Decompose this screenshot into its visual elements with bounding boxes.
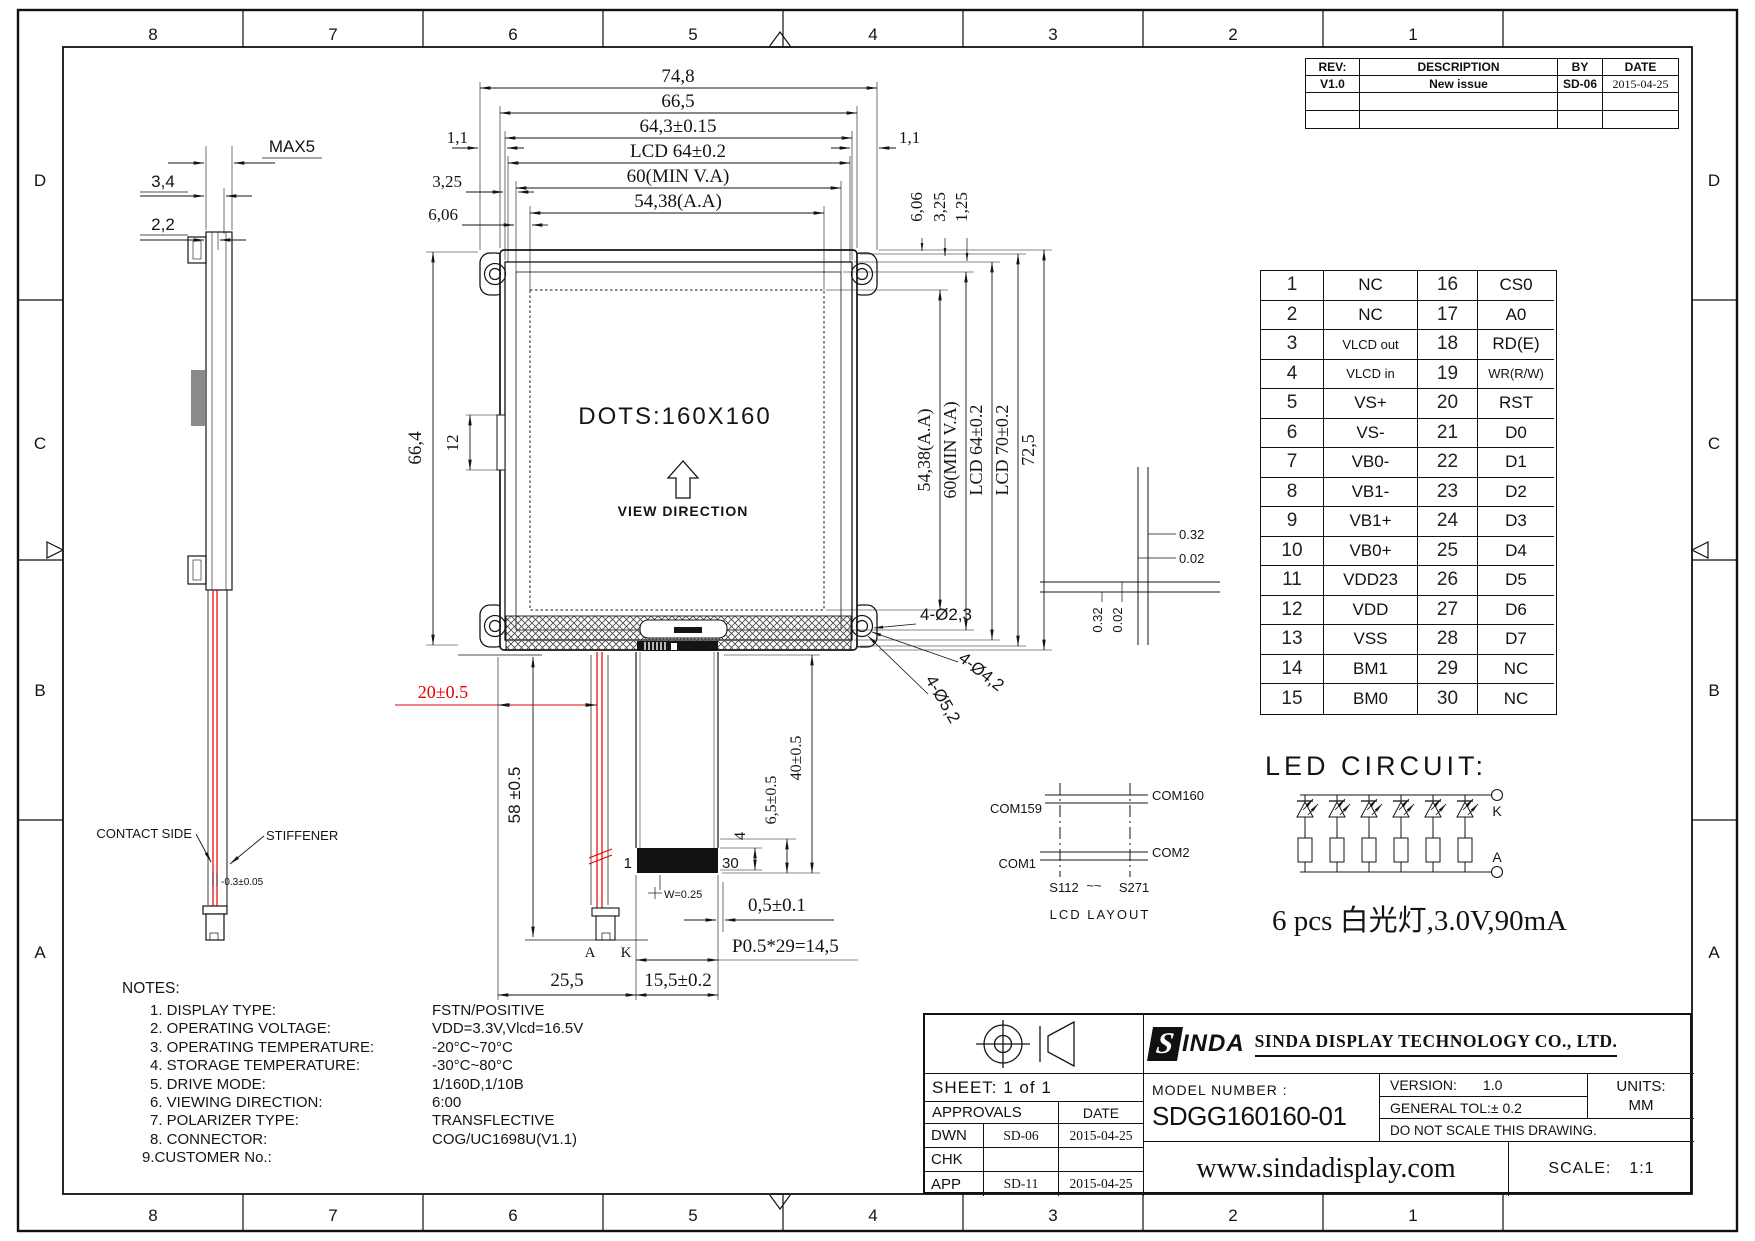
version-label: VERSION: [1390,1077,1457,1093]
note-label: 1. DISPLAY TYPE: [122,1002,432,1020]
zone-bot-4: 4 [868,1206,877,1225]
pin-name: VSS [1324,625,1418,655]
dim-60-va-h: 60(MIN V.A) [940,401,961,498]
pin-no: 20 [1418,389,1478,419]
note-item: 4. STORAGE TEMPERATURE:-30°C~80°C [122,1057,642,1075]
pin-no: 29 [1418,655,1478,685]
pin-no: 12 [1261,596,1324,626]
dim-20-red: 20±0.5 [418,682,468,702]
pin-name: NC [1324,271,1418,301]
pin-name: VB1+ [1324,507,1418,537]
detail-0-02-top: 0.02 [1179,551,1204,566]
pin-no: 13 [1261,625,1324,655]
projection-symbol-cell [925,1015,1144,1074]
dwn-by: SD-06 [984,1124,1059,1148]
pin-no: 1 [1261,271,1324,301]
pin-name: WR(R/W) [1478,360,1554,390]
pin-no: 24 [1418,507,1478,537]
app-by: SD-11 [984,1172,1059,1196]
dim-12: 12 [443,435,462,452]
pin-no: 16 [1418,271,1478,301]
scale-value: 1:1 [1629,1160,1654,1178]
view-direction-label: VIEW DIRECTION [618,503,749,519]
led-circuit [1297,790,1503,878]
dim-max5: MAX5 [269,137,315,156]
pin-assignment-table: 1NC16CS0 2NC17A0 3VLCD out18RD(E) 4VLCD … [1260,270,1557,715]
pin-name: RST [1478,389,1554,419]
dim-40: 40±0.5 [788,736,805,781]
pin-name: D3 [1478,507,1554,537]
note-item: 8. CONNECTOR:COG/UC1698U(V1.1) [122,1131,642,1149]
pin-no: 22 [1418,448,1478,478]
dim-15-5: 15,5±0.2 [644,970,711,991]
rev-cell: New issue [1360,76,1558,93]
pin-no: 15 [1261,684,1324,714]
model-number-value: SDGG160160-01 [1152,1101,1379,1132]
dim-72-5: 72,5 [1018,434,1038,466]
zone-top-5: 5 [688,25,697,44]
zone-top-1: 1 [1408,25,1417,44]
version-cell: VERSION: 1.0 [1380,1074,1587,1097]
pin-name: D7 [1478,625,1554,655]
center-mark-bottom [769,1194,791,1209]
chk-by [984,1148,1059,1172]
note-label: 5. DRIVE MODE: [122,1076,432,1094]
dim-pitch: P0.5*29=14,5 [732,936,839,957]
pin-no: 4 [1261,360,1324,390]
pin-name: VB1- [1324,478,1418,508]
company-header: S INDA SINDA DISPLAY TECHNOLOGY CO., LTD… [1144,1015,1694,1074]
dim-4-d4-2: 4-Ø4,2 [955,648,1008,695]
dim-4: 4 [732,832,749,840]
k-terminal [1492,790,1503,801]
fpc-pin30-label: 30 [722,855,739,872]
pin-no: 7 [1261,448,1324,478]
units-cell: UNITS: MM [1587,1074,1694,1119]
sinda-logo-text: INDA [1182,1030,1245,1058]
dim-58: 58 ±0.5 [505,767,524,824]
rev-cell-empty [1558,93,1603,110]
plug-k-label: K [621,945,632,961]
led-circuit-title: LED CIRCUIT: [1265,751,1487,781]
note-label: 9.CUSTOMER No.: [122,1149,424,1167]
scale-cell: SCALE: 1:1 [1509,1142,1694,1196]
zone-right-B: B [1708,681,1719,700]
note-item: 6. VIEWING DIRECTION:6:00 [122,1094,642,1112]
sinda-logo-icon: S [1147,1027,1183,1061]
pin-name: RD(E) [1478,330,1554,360]
pin-name: D6 [1478,596,1554,626]
zone-right-C: C [1708,434,1720,453]
zone-left-C: C [34,434,46,453]
pin-no: 18 [1418,330,1478,360]
note-value: COG/UC1698U(V1.1) [432,1131,577,1149]
pin-no: 19 [1418,360,1478,390]
note-item: 3. OPERATING TEMPERATURE:-20°C~70°C [122,1039,642,1057]
stiffener-label: STIFFENER [266,828,338,843]
pin-name: A0 [1478,301,1554,331]
pin-name: D5 [1478,566,1554,596]
rev-cell-empty [1603,93,1678,110]
dim-66-4: 66,4 [405,431,426,465]
dim-4-d2-3: 4-Ø2,3 [920,605,972,624]
top-dimension-labels: 74,8 66,5 64,3±0.15 LCD 64±0.2 60(MIN V.… [428,66,971,224]
pin-no: 3 [1261,330,1324,360]
model-number-label: MODEL NUMBER : [1152,1082,1379,1098]
pin-name: VDD [1324,596,1418,626]
module-bezel [500,250,857,650]
dim-3-25-right: 3,25 [930,192,949,222]
dwn-label: DWN [925,1124,984,1148]
date-header: DATE [1059,1102,1144,1124]
led-caption: 6 pcs 白光灯,3.0V,90mA [1272,904,1567,937]
lcd-layout-diagram [1040,783,1148,877]
dim-3-4: 3,4 [151,172,175,191]
zone-left-A: A [34,943,46,962]
bottom-dimension-labels: 1 30 W=0.25 20±0.5 58 ±0.5 25,5 15,5±0.2… [418,682,839,991]
note-item: 1. DISPLAY TYPE:FSTN/POSITIVE [122,1002,642,1020]
zone-left-D: D [34,171,46,190]
led-a-label: A [1492,849,1502,865]
dim-4-d5-2: 4-Ø5,2 [922,672,964,727]
rev-cell-empty [1360,111,1558,128]
pin-no: 9 [1261,507,1324,537]
pin-no: 11 [1261,566,1324,596]
tolerance-cell: GENERAL TOL:± 0.2 [1380,1097,1587,1119]
pin-name: BM1 [1324,655,1418,685]
note-label: 3. OPERATING TEMPERATURE: [122,1039,432,1057]
dim-74-8: 74,8 [661,66,694,87]
rev-cell-empty [1306,93,1360,110]
zone-left-B: B [34,681,45,700]
notes-heading: NOTES: [122,980,642,998]
zone-top-7: 7 [328,25,337,44]
pin-no: 28 [1418,625,1478,655]
note-value: 6:00 [432,1094,461,1112]
no-scale-note: DO NOT SCALE THIS DRAWING. [1380,1119,1694,1142]
dim-0-5: 0,5±0.1 [748,895,806,916]
dim-3-25-left: 3,25 [432,172,462,191]
dim-1-1-left: 1,1 [447,128,468,147]
rev-header-rev: REV: [1306,59,1360,76]
zone-top-2: 2 [1228,25,1237,44]
company-url: www.sindadisplay.com [1144,1142,1509,1196]
pin-no: 25 [1418,537,1478,567]
notes-block: NOTES: 1. DISPLAY TYPE:FSTN/POSITIVE 2. … [122,980,642,1168]
fpc-pin1-label: 1 [624,855,632,872]
note-item: 5. DRIVE MODE:1/160D,1/10B [122,1076,642,1094]
app-date: 2015-04-25 [1059,1172,1144,1196]
pin-no: 23 [1418,478,1478,508]
zone-bot-2: 2 [1228,1206,1237,1225]
zone-right-A: A [1708,943,1720,962]
s271-label: S271 [1119,880,1149,895]
revision-table: REV: DESCRIPTION BY DATE V1.0 New issue … [1305,58,1679,129]
dim-lcd64-h: LCD 64±0.2 [966,405,986,496]
zone-bot-6: 6 [508,1206,517,1225]
com160-label: COM160 [1152,788,1204,803]
note-label: 6. VIEWING DIRECTION: [122,1094,432,1112]
chk-date [1059,1148,1144,1172]
rev-header-date: DATE [1603,59,1678,76]
tail-thickness-label: -0.3±0.05 [221,877,264,888]
rev-cell-empty [1558,111,1603,128]
side-profile-view [140,146,322,940]
version-value: 1.0 [1483,1077,1502,1093]
title-block: SHEET: 1 of 1 APPROVALS DATE DWN SD-06 2… [923,1013,1692,1194]
fpc-contact-bar [637,848,718,873]
zone-bot-3: 3 [1048,1206,1057,1225]
pin-no: 8 [1261,478,1324,508]
company-name: SINDA DISPLAY TECHNOLOGY CO., LTD. [1255,1031,1618,1057]
zone-top-3: 3 [1048,25,1057,44]
zone-top-4: 4 [868,25,877,44]
pin-name: CS0 [1478,271,1554,301]
rev-cell: 2015-04-25 [1603,76,1678,93]
engineering-drawing-sheet: 8 7 6 5 4 3 2 1 8 7 6 5 4 3 2 1 D C B A … [0,0,1755,1241]
zone-bot-7: 7 [328,1206,337,1225]
note-value: -20°C~70°C [432,1039,513,1057]
scale-label: SCALE: [1548,1160,1611,1178]
pin-no: 21 [1418,419,1478,449]
chk-label: CHK [925,1148,984,1172]
tilde-label: ~~ [1086,878,1102,893]
dwn-date: 2015-04-25 [1059,1124,1144,1148]
lcd-layout-caption: LCD LAYOUT [1050,907,1151,922]
zone-top-8: 8 [148,25,157,44]
pin-no: 14 [1261,655,1324,685]
note-item: 7. POLARIZER TYPE:TRANSFLECTIVE [122,1112,642,1130]
note-label: 8. CONNECTOR: [122,1131,432,1149]
pin-no: 2 [1261,301,1324,331]
pin-no: 5 [1261,389,1324,419]
lcd-layout-labels: COM159 COM160 COM1 COM2 S112 ~~ S271 LCD… [990,788,1204,922]
dim-6-06-left: 6,06 [428,205,458,224]
units-label: UNITS: [1616,1077,1665,1096]
rev-cell-empty [1306,111,1360,128]
pin-no: 27 [1418,596,1478,626]
dim-66-5: 66,5 [661,91,694,112]
dim-1-25-right: 1,25 [952,192,971,222]
note-value: VDD=3.3V,Vlcd=16.5V [432,1020,583,1038]
rev-cell: SD-06 [1558,76,1603,93]
s112-label: S112 [1049,880,1078,895]
dim-lcd64-w: LCD 64±0.2 [630,141,726,162]
right-dimension-labels: 54,38(A.A) 60(MIN V.A) LCD 64±0.2 LCD 70… [914,401,1038,498]
sheet-number: SHEET: 1 of 1 [925,1074,1144,1102]
pin-name: VB0- [1324,448,1418,478]
pin-name: NC [1324,301,1418,331]
pin-name: BM0 [1324,684,1418,714]
dim-54-38-h: 54,38(A.A) [914,409,935,492]
dim-1-1-right: 1,1 [899,128,920,147]
a-terminal [1492,867,1503,878]
rev-header-desc: DESCRIPTION [1360,59,1558,76]
pin-name: D4 [1478,537,1554,567]
approvals-header: APPROVALS [925,1102,1059,1124]
model-number-cell: MODEL NUMBER : SDGG160160-01 [1144,1074,1380,1142]
detail-0-02-left: 0.02 [1110,607,1125,632]
pin-name: D0 [1478,419,1554,449]
contact-side-label: CONTACT SIDE [96,826,192,841]
note-label: 4. STORAGE TEMPERATURE: [122,1057,432,1075]
com159-label: COM159 [990,801,1042,816]
rev-header-by: BY [1558,59,1603,76]
note-item: 9.CUSTOMER No.: [122,1149,642,1167]
pin-name: VLCD out [1324,330,1418,360]
note-item: 2. OPERATING VOLTAGE:VDD=3.3V,Vlcd=16.5V [122,1020,642,1038]
dim-60-va-w: 60(MIN V.A) [627,166,730,187]
note-value: 1/160D,1/10B [432,1076,524,1094]
dim-54-38-w: 54,38(A.A) [634,191,722,212]
pin-name: VS- [1324,419,1418,449]
pin-name: D1 [1478,448,1554,478]
led-k-label: K [1492,803,1502,819]
detail-0-32-top: 0.32 [1179,527,1204,542]
dim-2-2: 2,2 [151,215,175,234]
pin-name: VB0+ [1324,537,1418,567]
units-value: MM [1629,1096,1654,1115]
zone-right-D: D [1708,171,1720,190]
zone-bot-1: 1 [1408,1206,1417,1225]
rev-cell: V1.0 [1306,76,1360,93]
zone-top-6: 6 [508,25,517,44]
pin-name: VS+ [1324,389,1418,419]
pin-no: 26 [1418,566,1478,596]
zone-bot-8: 8 [148,1206,157,1225]
pin-name: NC [1478,655,1554,685]
zone-bot-5: 5 [688,1206,697,1225]
dim-64-3: 64,3±0.15 [640,116,717,137]
dim-6-5: 6,5±0.5 [763,776,780,825]
detail-0-32-left: 0.32 [1090,607,1105,632]
pin-no: 10 [1261,537,1324,567]
center-mark-left [47,542,63,558]
note-value: -30°C~80°C [432,1057,513,1075]
dots-label: DOTS:160X160 [578,403,771,430]
note-label: 7. POLARIZER TYPE: [122,1112,432,1130]
pin-no: 30 [1418,684,1478,714]
com1-label: COM1 [998,856,1036,871]
note-value: TRANSFLECTIVE [432,1112,555,1130]
side-tab [497,415,505,470]
pin-name: NC [1478,684,1554,714]
pin-name: VDD23 [1324,566,1418,596]
app-label: APP [925,1172,984,1196]
dim-w-0-25: W=0.25 [664,889,702,901]
rev-cell-empty [1360,93,1558,110]
note-label: 2. OPERATING VOLTAGE: [122,1020,432,1038]
rev-cell-empty [1603,111,1678,128]
dim-6-06-right: 6,06 [907,192,926,222]
pin-name: VLCD in [1324,360,1418,390]
front-view [458,250,877,655]
note-value: FSTN/POSITIVE [432,1002,545,1020]
pin-no: 17 [1418,301,1478,331]
center-mark-top [769,32,791,47]
center-mark-right [1692,542,1708,558]
pin-name: D2 [1478,478,1554,508]
com2-label: COM2 [1152,845,1190,860]
pin-no: 6 [1261,419,1324,449]
plug-a-label: A [585,945,596,961]
dim-lcd70-h: LCD 70±0.2 [992,405,1012,496]
